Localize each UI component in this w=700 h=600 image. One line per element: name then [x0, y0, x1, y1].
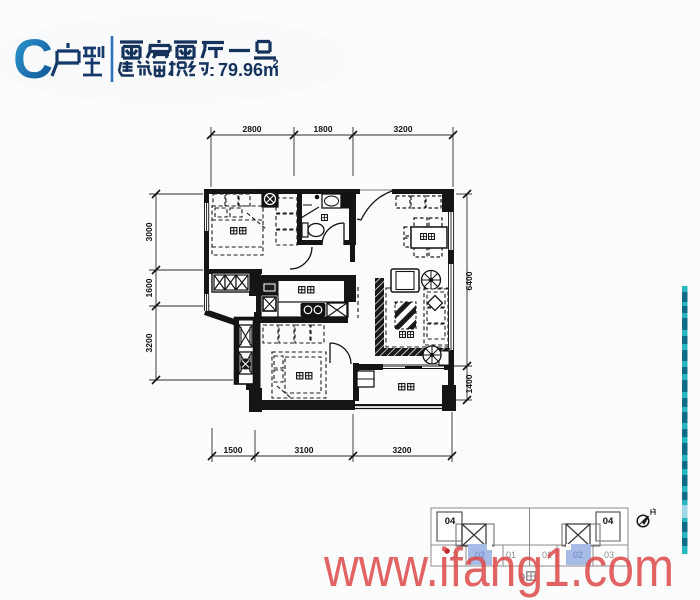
svg-text:www.ifang1.com: www.ifang1.com — [323, 536, 674, 598]
svg-text:04: 04 — [603, 516, 614, 527]
svg-text:3200: 3200 — [144, 333, 154, 352]
svg-text:3000: 3000 — [144, 222, 154, 241]
svg-text:3100: 3100 — [295, 445, 314, 455]
svg-text:3200: 3200 — [394, 124, 413, 134]
svg-text:1600: 1600 — [144, 278, 154, 297]
svg-text:6400: 6400 — [464, 271, 474, 290]
svg-text:2800: 2800 — [243, 124, 262, 134]
svg-text:79.96m: 79.96m — [218, 60, 279, 80]
svg-text:1400: 1400 — [464, 374, 474, 393]
svg-text:3200: 3200 — [393, 445, 412, 455]
svg-text:1500: 1500 — [224, 445, 243, 455]
svg-text:2: 2 — [273, 58, 279, 70]
svg-text:C: C — [13, 27, 53, 90]
svg-text:04: 04 — [445, 516, 456, 527]
svg-text:1800: 1800 — [314, 124, 333, 134]
